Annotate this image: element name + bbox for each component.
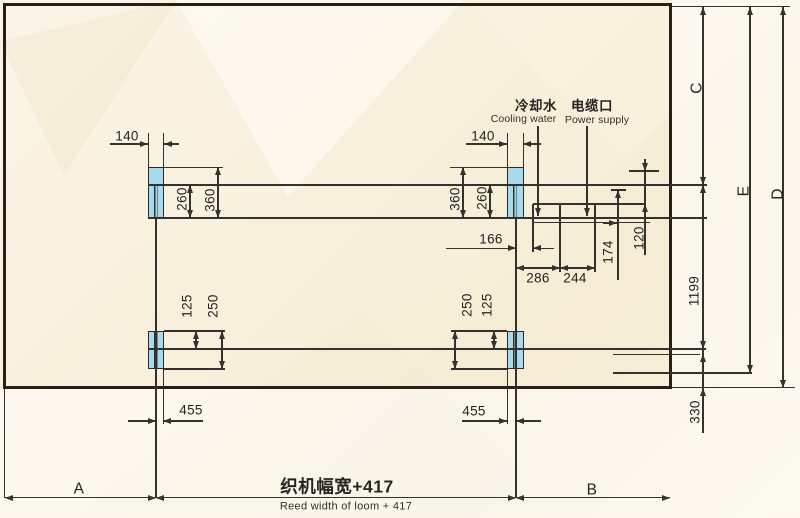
- outside-margin-bottom: [0, 389, 672, 518]
- ext-line: [164, 368, 225, 369]
- dim-line-166: [446, 248, 516, 249]
- arrow: [516, 418, 524, 424]
- dim-140-right: 140: [471, 129, 494, 143]
- arrow: [642, 163, 648, 171]
- arrow: [700, 177, 706, 185]
- ext-line: [594, 204, 595, 272]
- arrow: [5, 495, 13, 501]
- dim-125-bl: 125: [180, 294, 194, 317]
- ext-line-left-edge: [4, 389, 5, 498]
- dim-140-left: 140: [115, 129, 138, 143]
- dim-line-bottom-chain: [4, 497, 670, 498]
- arrow: [491, 331, 497, 339]
- arrow: [140, 141, 148, 147]
- foot-divider: [154, 185, 159, 218]
- arrow: [609, 220, 617, 226]
- arrow: [148, 495, 156, 501]
- ext-line: [559, 204, 560, 272]
- dim-letter-c: C: [689, 82, 705, 94]
- machine-outline: [3, 3, 672, 389]
- dim-1199: 1199: [687, 276, 701, 306]
- dim-260-right: 260: [475, 186, 489, 209]
- ext-line: [163, 133, 164, 167]
- reed-width-label-en: Reed width of loom + 417: [280, 501, 412, 512]
- arrow: [523, 141, 531, 147]
- arrow: [747, 7, 753, 15]
- arrow: [452, 331, 458, 339]
- ext-line: [523, 133, 524, 167]
- dim-125-br: 125: [480, 293, 494, 316]
- arrow: [700, 7, 706, 15]
- connection-box-top: [533, 203, 645, 204]
- dim-260-left: 260: [175, 187, 189, 210]
- dim-244: 244: [563, 271, 586, 285]
- ext-line: [507, 369, 508, 424]
- arrow: [452, 361, 458, 369]
- dim-166: 166: [479, 232, 502, 246]
- arrow: [552, 265, 560, 271]
- arrow: [499, 141, 507, 147]
- arrow: [163, 418, 171, 424]
- outside-margin-right: [672, 0, 800, 518]
- beam-bottom-line: [148, 217, 707, 218]
- arrow: [700, 185, 706, 193]
- dim-360-left: 360: [203, 188, 217, 211]
- cooling-water-label-en: Cooling water: [491, 113, 557, 124]
- dim-letter-e: E: [736, 186, 752, 197]
- dim-letter-a: A: [74, 481, 85, 497]
- arrow: [535, 208, 541, 216]
- ext-line-top: [672, 6, 790, 7]
- ref-line-e: [613, 372, 752, 373]
- dim-line-174: [617, 190, 618, 280]
- arrow: [516, 495, 524, 501]
- arrow: [164, 141, 172, 147]
- ref-line: [613, 354, 700, 355]
- beam-top-line: [148, 184, 707, 185]
- arrow: [499, 418, 507, 424]
- dim-330: 330: [688, 400, 702, 423]
- dim-letter-d: D: [770, 188, 786, 200]
- dim-letter-b: B: [587, 482, 598, 498]
- ext-line: [148, 133, 149, 167]
- ext-line: [163, 369, 164, 424]
- arrow: [533, 245, 541, 251]
- arrow: [487, 210, 493, 218]
- ext-line: [507, 133, 508, 167]
- arrow: [219, 361, 225, 369]
- dim-250-br: 250: [460, 293, 474, 316]
- power-supply-label-cn: 电缆口: [571, 99, 613, 113]
- arrow: [148, 418, 156, 424]
- arrow: [215, 167, 221, 175]
- dim-455-left: 455: [179, 403, 202, 417]
- arrow: [700, 341, 706, 349]
- reed-width-label-cn: 织机幅宽+417: [280, 478, 393, 496]
- arrow: [219, 331, 225, 339]
- ext-line: [451, 330, 507, 331]
- arrow: [780, 380, 786, 388]
- arrow: [662, 495, 670, 501]
- arrow: [491, 341, 497, 349]
- arrow: [193, 331, 199, 339]
- dim-174: 174: [601, 240, 615, 263]
- dim-360-right: 360: [448, 187, 462, 210]
- arrow: [700, 388, 706, 396]
- ext-line: [451, 368, 507, 369]
- arrow: [780, 7, 786, 15]
- arrow: [156, 495, 164, 501]
- connection-box-bottom: [533, 222, 650, 223]
- ext-line: [450, 167, 507, 168]
- foot-center-line-right: [515, 218, 516, 497]
- arrow: [747, 365, 753, 373]
- dim-250-bl: 250: [206, 294, 220, 317]
- arrow: [460, 167, 466, 175]
- power-supply-label-en: Power supply: [565, 115, 629, 126]
- arrow: [700, 354, 706, 362]
- arrow: [615, 190, 621, 198]
- arrow: [587, 265, 595, 271]
- dim-455-right: 455: [462, 404, 485, 418]
- arrow: [516, 265, 524, 271]
- dim-line-c-1199-330: [702, 7, 703, 433]
- arrow: [584, 208, 590, 216]
- foot-center-line-left: [155, 218, 156, 497]
- rear-beam-line: [148, 348, 706, 349]
- installation-diagram: 140 260 360 140 360 260 冷却水 Cooling wate…: [0, 0, 800, 518]
- ref-line-d: [672, 387, 795, 388]
- arrow: [193, 341, 199, 349]
- foot-divider: [513, 185, 518, 218]
- dim-120: 120: [632, 226, 646, 249]
- arrow: [508, 495, 516, 501]
- arrow: [642, 204, 648, 212]
- cooling-water-label-cn: 冷却水: [515, 99, 557, 113]
- dim-286: 286: [526, 271, 549, 285]
- arrow: [508, 245, 516, 251]
